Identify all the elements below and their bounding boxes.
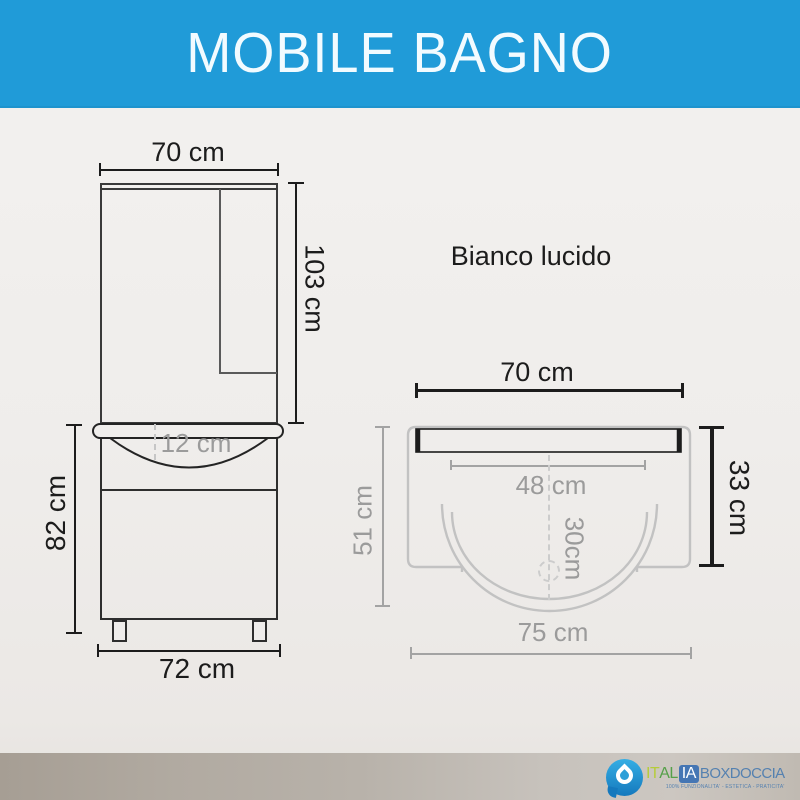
front-mirror-width-tick-right xyxy=(277,163,279,176)
front-mirror-width-dimline xyxy=(100,169,278,171)
top-inner-width-tick-right xyxy=(644,460,646,470)
front-mirror-height-cap-top xyxy=(288,182,304,184)
top-width-dimline xyxy=(416,389,683,392)
front-cabinet-height-cap-top xyxy=(66,424,82,426)
top-width-label: 70 cm xyxy=(467,357,607,388)
water-drop-icon xyxy=(606,759,643,796)
top-depth-left-cap-bottom xyxy=(375,605,390,607)
top-depth-left-dimline xyxy=(382,427,384,607)
brand-logo: ITALIABOXDOCCIA 100% FUNZIONALITA' - EST… xyxy=(606,757,785,797)
product-diagram-page: MOBILE BAGNO 70 cm 103 cm 12 cm 82 cm 72… xyxy=(0,0,800,800)
top-total-width-dimline xyxy=(410,653,692,655)
top-inner-width-label: 48 cm xyxy=(491,470,611,501)
brand-tagline: 100% FUNZIONALITA' - ESTETICA - PRATICIT… xyxy=(646,785,785,790)
top-depth-right-dimline xyxy=(710,427,714,567)
front-foot-left xyxy=(112,620,127,642)
top-depth-left-cap-top xyxy=(375,426,390,428)
top-drain-circle xyxy=(538,560,560,582)
front-mirror-height-label: 103 cm xyxy=(299,229,330,349)
top-total-width-tick-right xyxy=(690,647,692,659)
front-base-width-dimline xyxy=(97,650,281,652)
brand-part-al: AL xyxy=(659,766,678,782)
front-cabinet-height-cap-bottom xyxy=(66,632,82,634)
brand-part-boxdoccia: BOXDOCCIA xyxy=(700,766,785,781)
top-depth-left-label: 51 cm xyxy=(348,461,379,581)
page-title: MOBILE BAGNO xyxy=(187,20,614,86)
front-base-width-tick-left xyxy=(97,644,99,657)
top-inner-width-tick-left xyxy=(450,460,452,470)
top-total-width-label: 75 cm xyxy=(493,617,613,648)
front-cabinet-height-label: 82 cm xyxy=(40,453,72,573)
front-mirror-height-dimline xyxy=(295,183,297,423)
front-mirror-width-label: 70 cm xyxy=(128,137,248,168)
front-basin-apron-label: 12 cm xyxy=(146,428,246,459)
finish-label: Bianco lucido xyxy=(431,241,631,272)
top-depth-right-cap-bottom xyxy=(699,564,724,567)
front-mirror-door xyxy=(219,189,277,374)
top-total-width-tick-left xyxy=(410,647,412,659)
top-width-tick-left xyxy=(415,383,418,398)
front-base-width-label: 72 cm xyxy=(137,653,257,685)
front-cabinet-divider xyxy=(100,489,278,491)
brand-part-it: IT xyxy=(646,766,659,782)
brand-text: ITALIABOXDOCCIA 100% FUNZIONALITA' - EST… xyxy=(646,765,785,790)
front-cabinet-height-dimline xyxy=(74,425,76,634)
front-base-width-tick-right xyxy=(279,644,281,657)
front-mirror-height-cap-bottom xyxy=(288,422,304,424)
front-foot-right xyxy=(252,620,267,642)
top-width-tick-right xyxy=(681,383,684,398)
top-basin-depth-label: 30cm xyxy=(559,494,590,604)
top-depth-right-label: 33 cm xyxy=(723,438,755,558)
brand-part-ia: IA xyxy=(679,765,699,783)
front-mirror-width-tick-left xyxy=(99,163,101,176)
top-depth-right-cap-top xyxy=(699,426,724,429)
header-banner: MOBILE BAGNO xyxy=(0,0,800,108)
